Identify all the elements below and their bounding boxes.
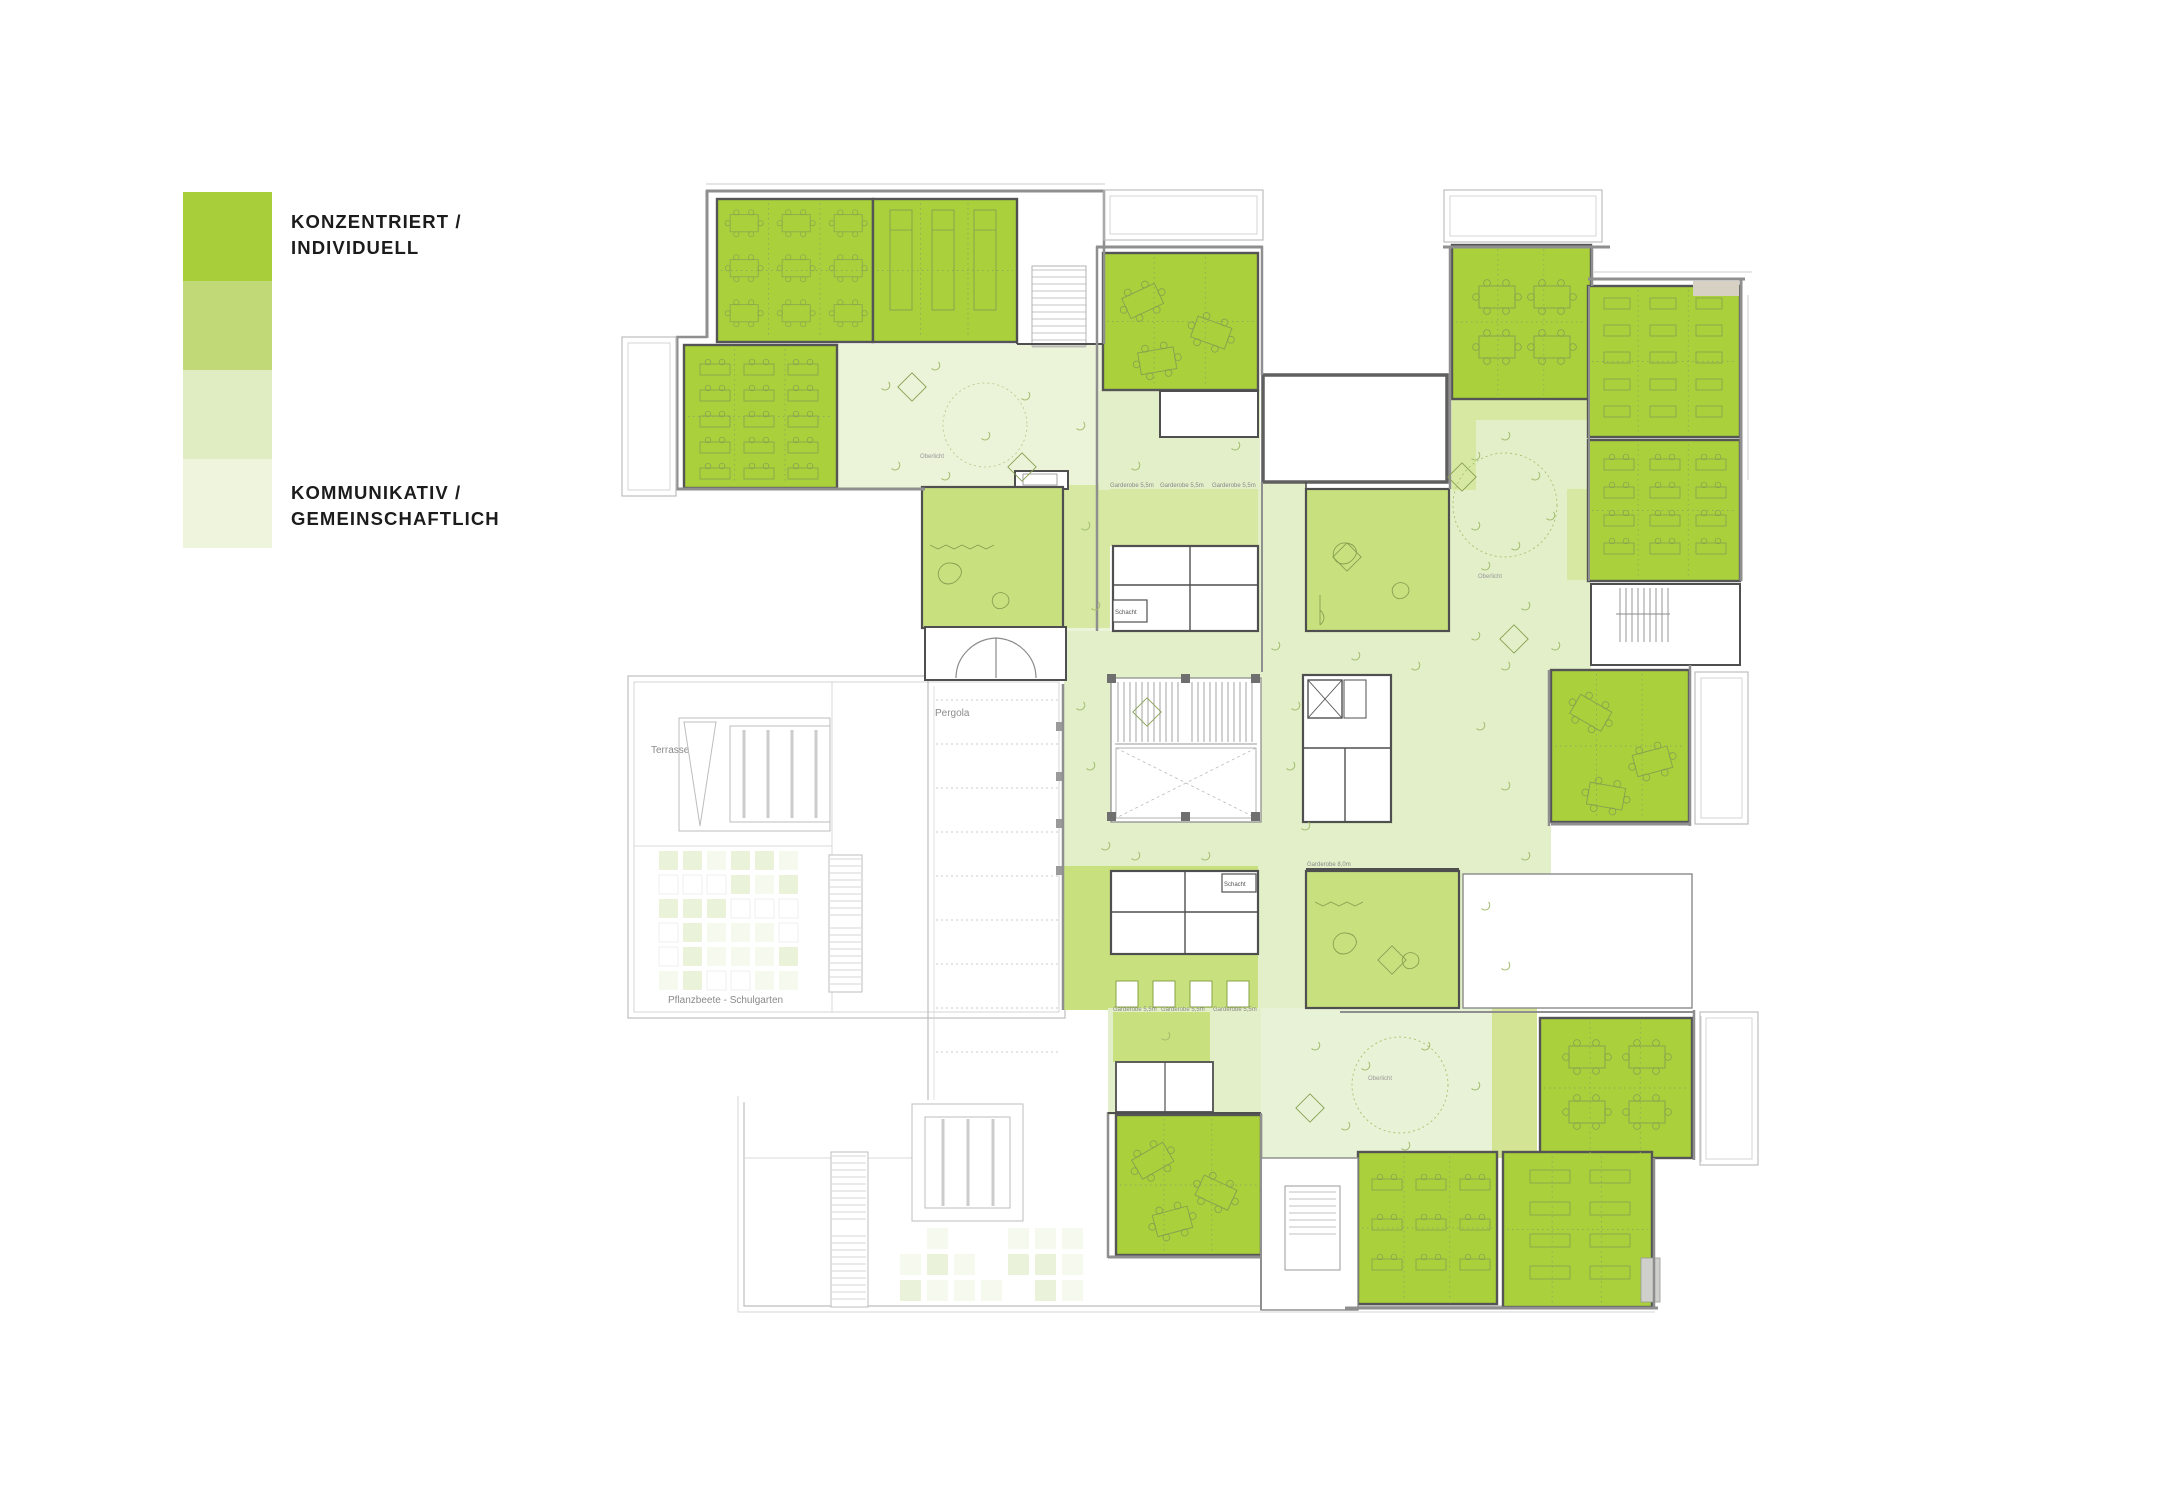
svg-text:Garderobe 5,5m: Garderobe 5,5m (1213, 1007, 1257, 1013)
svg-text:Terrasse: Terrasse (651, 745, 690, 756)
svg-text:KONZENTRIERT /: KONZENTRIERT / (291, 211, 462, 232)
svg-text:Garderobe 5,5m: Garderobe 5,5m (1212, 483, 1256, 489)
svg-text:Oberlicht: Oberlicht (1478, 574, 1502, 580)
svg-text:Garderobe 5,5m: Garderobe 5,5m (1113, 1007, 1157, 1013)
svg-text:Schacht: Schacht (1224, 882, 1246, 888)
svg-text:Pergola: Pergola (935, 708, 970, 719)
svg-text:Pflanzbeete - Schulgarten: Pflanzbeete - Schulgarten (668, 995, 783, 1006)
svg-text:Garderobe 5,5m: Garderobe 5,5m (1161, 1007, 1205, 1013)
svg-text:Oberlicht: Oberlicht (1368, 1076, 1392, 1082)
svg-text:Garderobe 5,5m: Garderobe 5,5m (1160, 483, 1204, 489)
svg-text:Garderobe 8,0m: Garderobe 8,0m (1307, 862, 1351, 868)
svg-text:Schacht: Schacht (1115, 610, 1137, 616)
svg-text:Oberlicht: Oberlicht (920, 454, 944, 460)
svg-text:Garderobe 5,5m: Garderobe 5,5m (1110, 483, 1154, 489)
svg-text:INDIVIDUELL: INDIVIDUELL (291, 237, 419, 258)
svg-text:KOMMUNIKATIV /: KOMMUNIKATIV / (291, 482, 461, 503)
svg-text:GEMEINSCHAFTLICH: GEMEINSCHAFTLICH (291, 508, 500, 529)
